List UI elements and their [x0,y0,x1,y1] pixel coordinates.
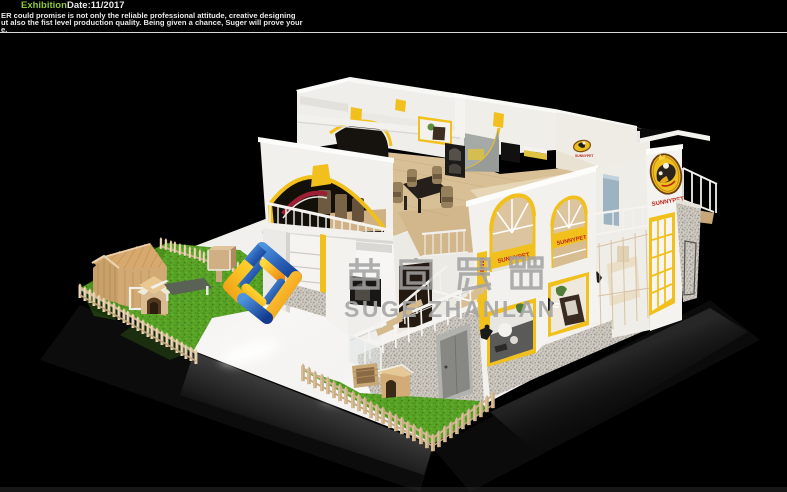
svg-text:SUGE ZHANLAN: SUGE ZHANLAN [344,296,557,322]
svg-text:SUNNYPET: SUNNYPET [575,154,594,158]
